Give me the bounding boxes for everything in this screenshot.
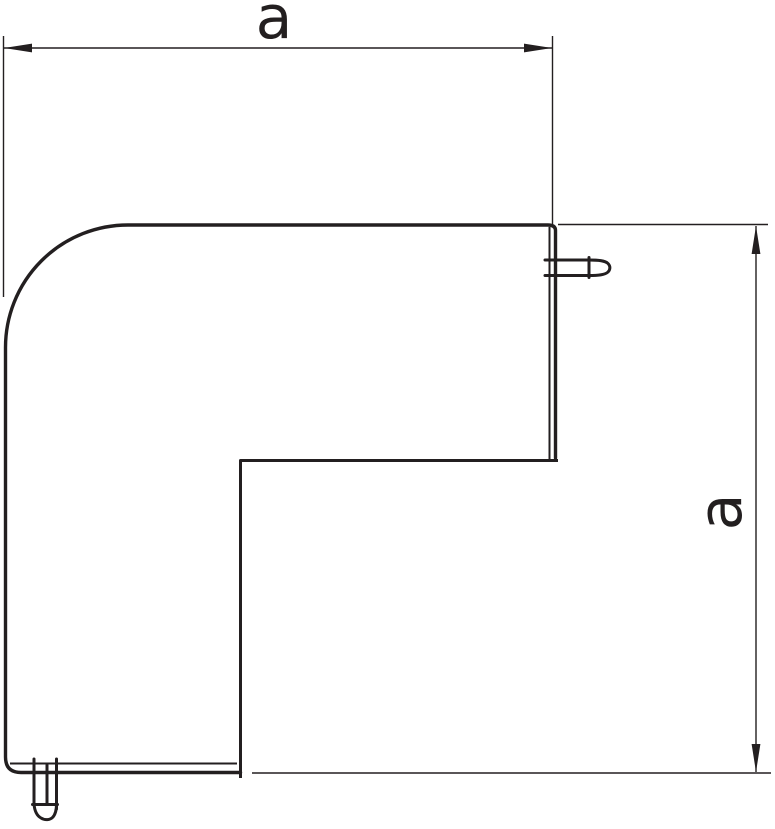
- dimension-width: a: [4, 0, 553, 297]
- dimension-width-label: a: [256, 0, 293, 53]
- arrowhead-up-icon: [752, 226, 761, 254]
- dimension-height-label: a: [686, 494, 756, 531]
- technical-drawing-canvas: a a: [0, 0, 775, 829]
- corner-piece-figure: a a: [0, 0, 775, 829]
- part-outline: [6, 225, 556, 773]
- latch-tab-right-nose: [589, 260, 610, 276]
- arrowhead-left-icon: [4, 44, 32, 53]
- corner-piece: [6, 225, 610, 820]
- latch-tab-bottom: [33, 759, 58, 820]
- arrowhead-down-icon: [752, 744, 761, 772]
- latch-tab-bottom-nose: [34, 804, 57, 820]
- arrowhead-right-icon: [524, 44, 552, 53]
- part-inner-edge: [241, 461, 559, 779]
- dimension-height: a: [252, 225, 771, 774]
